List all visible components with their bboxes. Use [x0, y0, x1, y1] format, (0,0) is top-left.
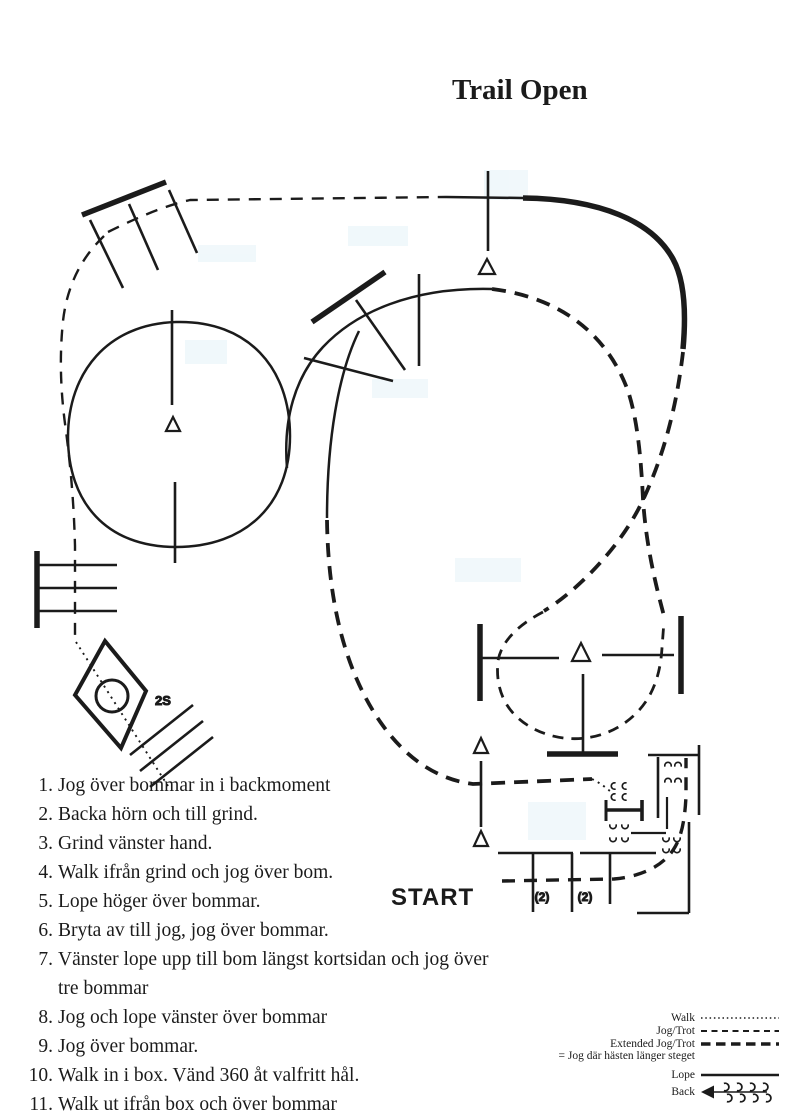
instruction-text-line1: Vänster lope upp till bom längst kortsid… — [58, 945, 489, 974]
legend-note: = Jog där hästen länger steget — [559, 1050, 779, 1063]
walk-line-sample-icon — [701, 1014, 779, 1022]
instruction-item: 5. Lope höger över bommar. — [23, 887, 489, 916]
instruction-text: Grind vänster hand. — [58, 829, 212, 858]
pole-count-right: (2) — [578, 890, 593, 904]
instruction-number: 9. — [23, 1032, 53, 1061]
instruction-text: Walk ut ifrån box och över bommar — [58, 1090, 337, 1117]
instruction-number: 11. — [23, 1090, 53, 1117]
extended-line-sample-icon — [701, 1040, 779, 1048]
legend-label-back: Back — [671, 1086, 695, 1098]
instruction-text-line2: tre bommar — [58, 974, 489, 1003]
instruction-item: 10. Walk in i box. Vänd 360 åt valfritt … — [23, 1061, 489, 1090]
instruction-text: Walk ifrån grind och jog över bom. — [58, 858, 333, 887]
legend-row-lope: Lope — [559, 1068, 779, 1081]
instruction-number: 7. — [23, 945, 53, 974]
instruction-text: Jog och lope vänster över bommar — [58, 1003, 327, 1032]
legend-label-walk: Walk — [671, 1012, 695, 1024]
instruction-item: 8. Jog och lope vänster över bommar — [23, 1003, 489, 1032]
lope-path-top-thin — [446, 197, 523, 198]
instruction-item: 4. Walk ifrån grind och jog över bom. — [23, 858, 489, 887]
lope-arc-inner — [327, 331, 359, 518]
instruction-list: 1. Jog över bommar in i backmoment 2. Ba… — [23, 771, 489, 1117]
legend-row-jog: Jog/Trot — [559, 1024, 779, 1037]
jog-path-square-u — [497, 612, 664, 739]
instruction-text: Jog över bommar. — [58, 1032, 198, 1061]
instruction-item: 3. Grind vänster hand. — [23, 829, 489, 858]
instruction-item: 9. Jog över bommar. — [23, 1032, 489, 1061]
instruction-text: Walk in i box. Vänd 360 åt valfritt hål. — [58, 1061, 359, 1090]
trail-pattern-page: Trail Open — [0, 0, 800, 1117]
legend-label-jog: Jog/Trot — [656, 1025, 695, 1037]
jog-path-right-a — [544, 352, 683, 611]
legend-row-walk: Walk — [559, 1011, 779, 1024]
instruction-item: 2. Backa hörn och till grind. — [23, 800, 489, 829]
instruction-text: Bryta av till jog, jog över bommar. — [58, 916, 329, 945]
instruction-text: Vänster lope upp till bom längst kortsid… — [58, 945, 489, 1003]
legend-label-lope: Lope — [671, 1069, 695, 1081]
instruction-item: 11. Walk ut ifrån box och över bommar — [23, 1090, 489, 1117]
lope-path-top-thick — [523, 198, 684, 349]
instruction-number: 1. — [23, 771, 53, 800]
turn-box-obstacle: 2S — [75, 641, 171, 748]
gait-legend: Walk Jog/Trot Extended Jog/Trot = Jog dä… — [559, 1011, 779, 1103]
legend-row-extended: Extended Jog/Trot — [559, 1037, 779, 1050]
fan-poles-obstacle-middle — [304, 272, 419, 381]
lope-line-sample-icon — [701, 1071, 779, 1079]
jog-line-sample-icon — [701, 1027, 779, 1035]
instruction-text: Backa hörn och till grind. — [58, 800, 258, 829]
fence-obstacle-left — [37, 551, 117, 628]
instruction-text: Jog över bommar in i backmoment — [58, 771, 330, 800]
instruction-number: 8. — [23, 1003, 53, 1032]
start-rails-obstacle: (2) (2) — [498, 853, 656, 912]
instruction-item: 6. Bryta av till jog, jog över bommar. — [23, 916, 489, 945]
instruction-number: 2. — [23, 800, 53, 829]
box-label: 2S — [155, 693, 171, 708]
walk-path-gate — [592, 779, 613, 794]
instruction-number: 6. — [23, 916, 53, 945]
instruction-text: Lope höger över bommar. — [58, 887, 261, 916]
hoofprint-marks — [610, 762, 681, 852]
scan-artifacts — [185, 170, 586, 840]
instruction-number: 5. — [23, 887, 53, 916]
legend-row-back: Back — [559, 1081, 779, 1103]
instruction-number: 4. — [23, 858, 53, 887]
gate-obstacle — [606, 800, 642, 821]
lope-circle-obstacle — [68, 310, 290, 563]
pole-count-left: (2) — [535, 890, 550, 904]
fan-poles-obstacle-topleft — [82, 182, 197, 288]
legend-label-extended: Extended Jog/Trot — [610, 1038, 695, 1050]
instruction-item: 1. Jog över bommar in i backmoment — [23, 771, 489, 800]
instruction-number: 10. — [23, 1061, 53, 1090]
instruction-item: 7. Vänster lope upp till bom längst kort… — [23, 945, 489, 1003]
instruction-number: 3. — [23, 829, 53, 858]
back-corner-obstacle — [631, 745, 699, 913]
back-arrow-sample-icon — [701, 1081, 779, 1103]
